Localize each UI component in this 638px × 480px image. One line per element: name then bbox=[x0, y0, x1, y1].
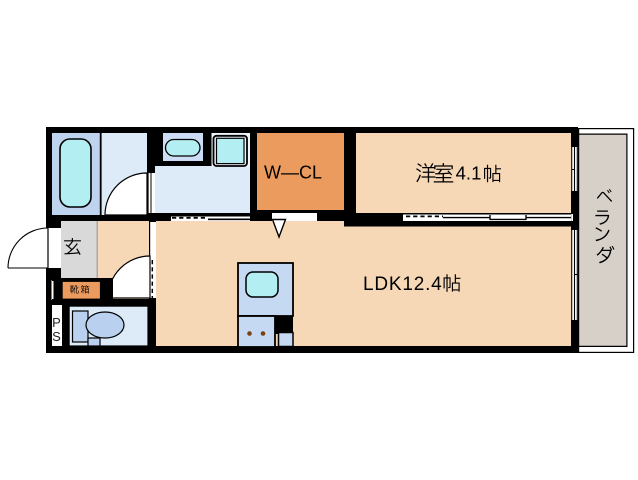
svg-text:P: P bbox=[52, 315, 61, 330]
svg-text:LDK12.4: LDK12.4 bbox=[363, 274, 443, 295]
svg-text:S: S bbox=[52, 329, 61, 344]
svg-text:4.1: 4.1 bbox=[456, 163, 482, 184]
svg-text:W—CL: W—CL bbox=[264, 163, 322, 183]
